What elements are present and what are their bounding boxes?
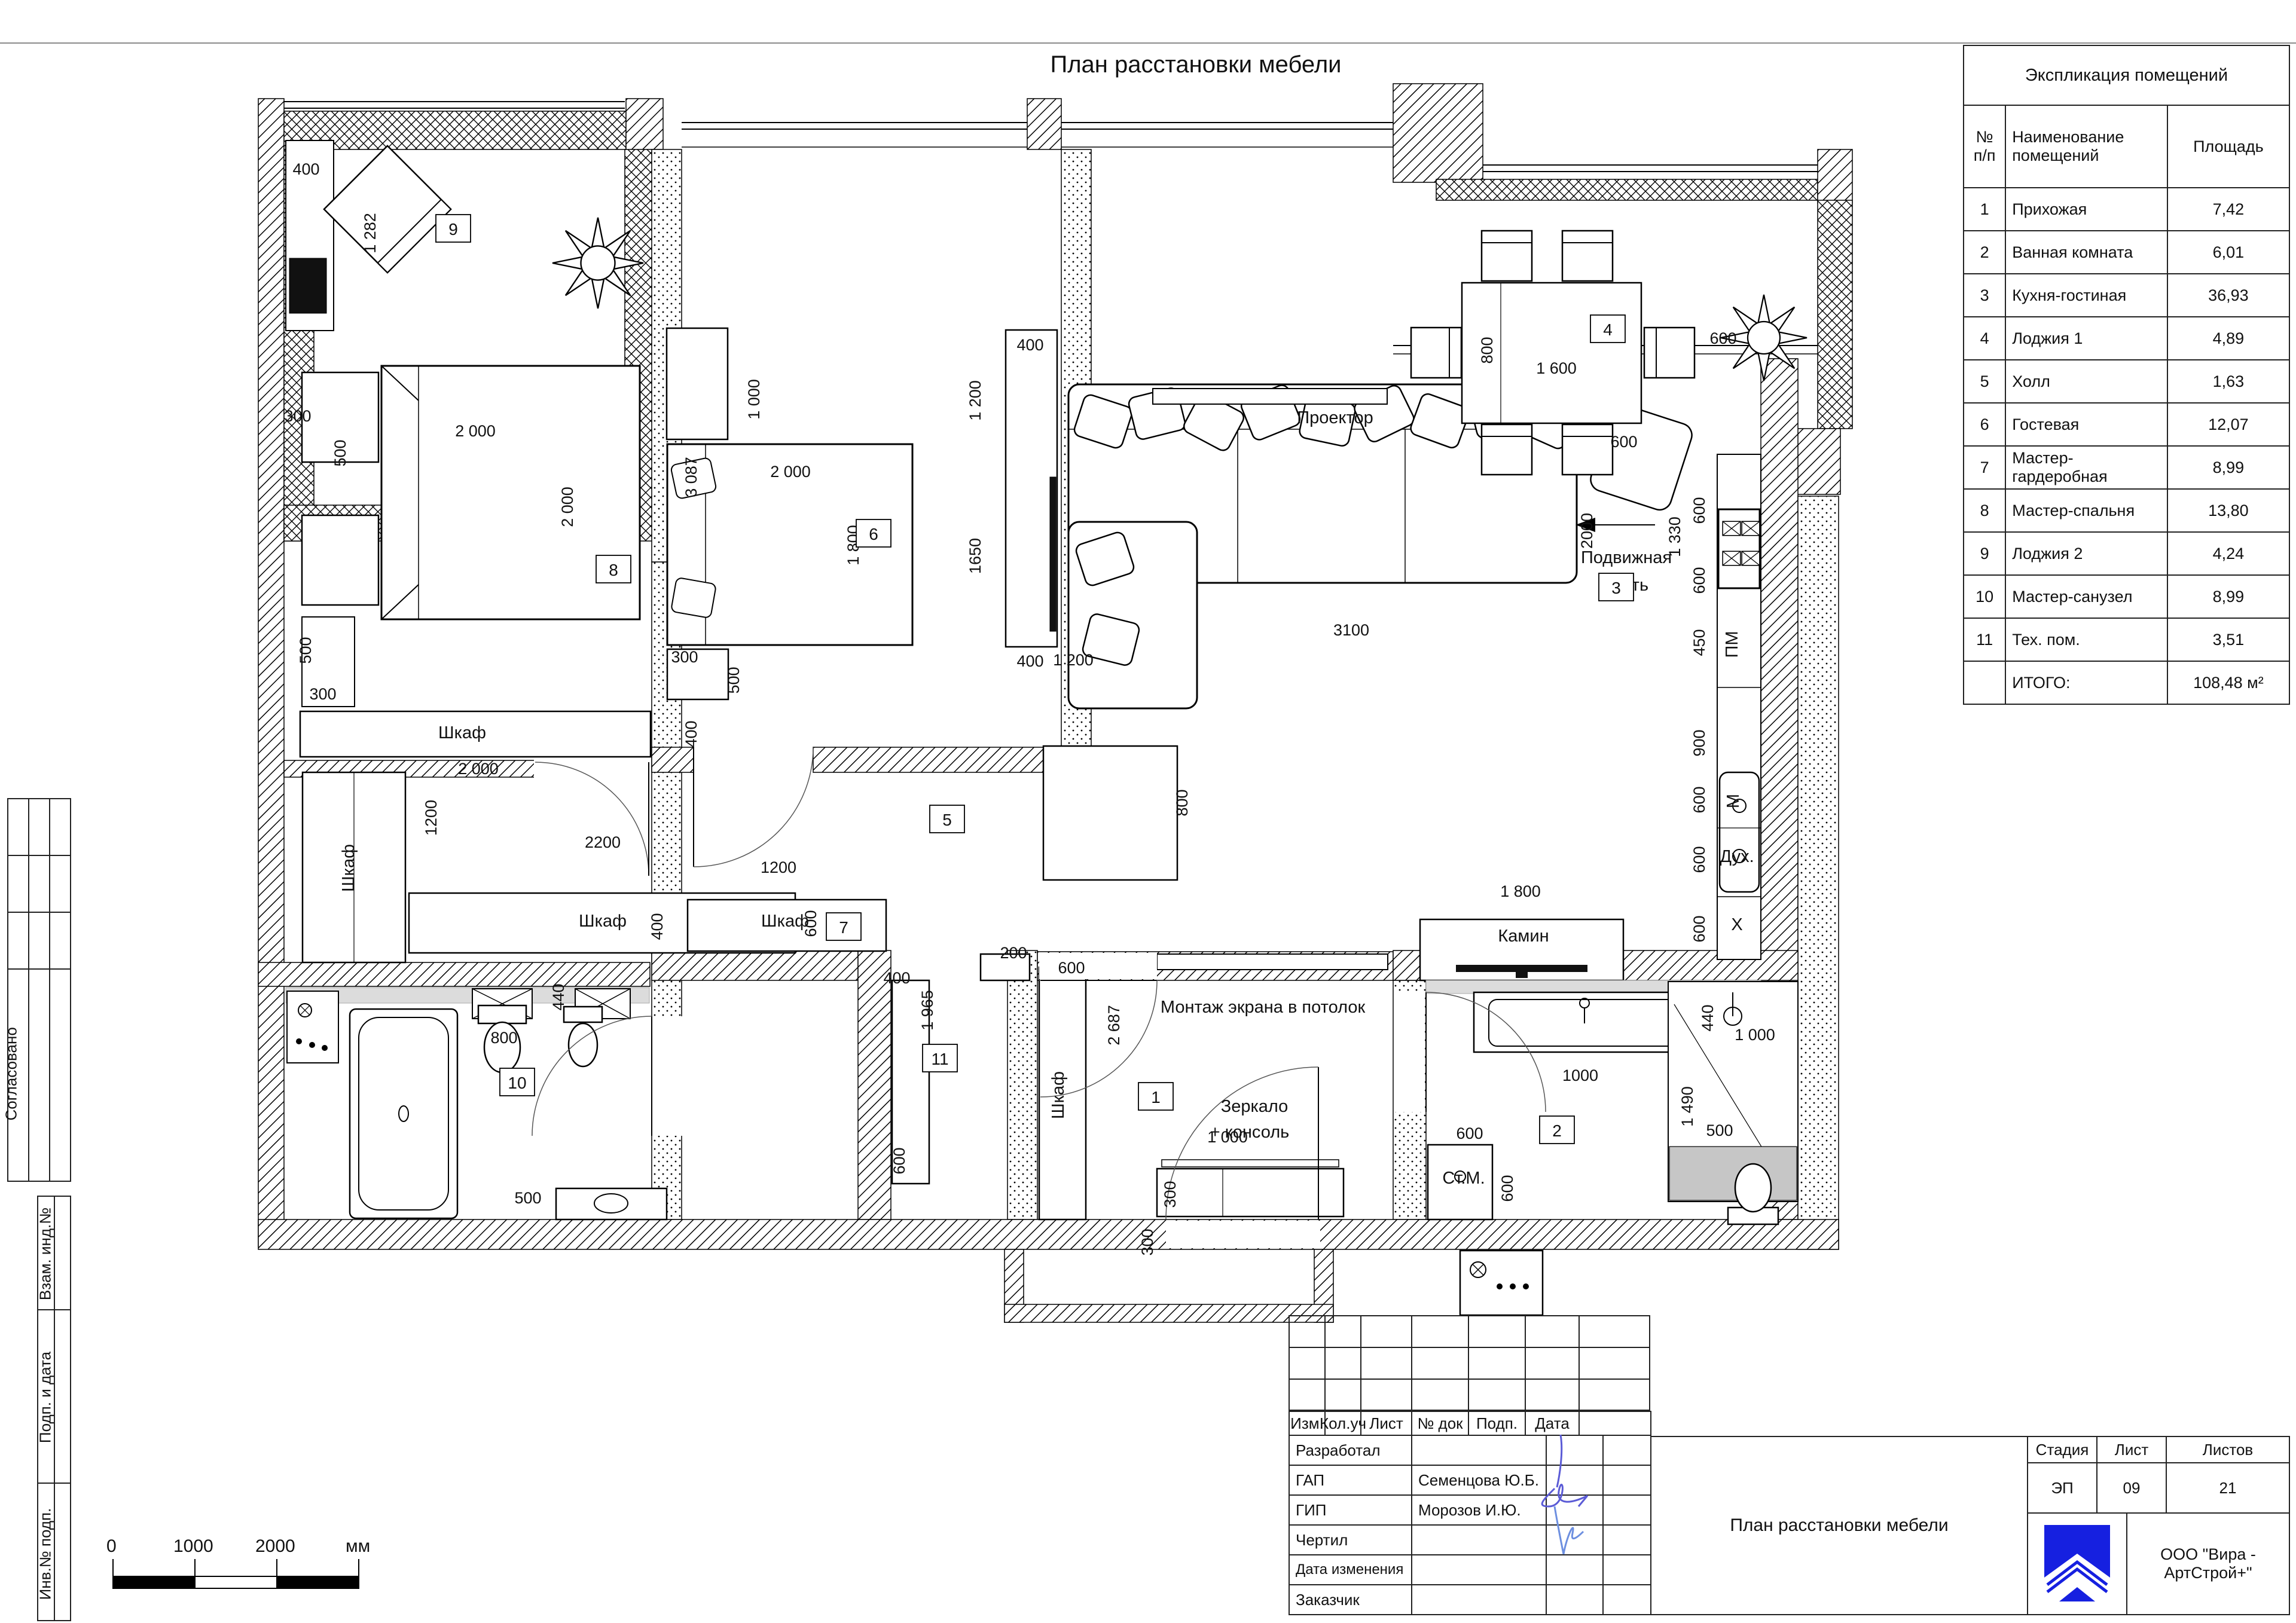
col-header-num: № п/п <box>1964 105 2005 188</box>
tb-col-koluch: Кол.уч <box>1324 1411 1361 1436</box>
room-tag: 1 <box>1138 1083 1173 1110</box>
dimension-label: 1 000 <box>1735 1026 1775 1044</box>
dimension-label: 440 <box>1699 1004 1717 1031</box>
dimension-label: 2 000 <box>558 487 576 527</box>
drawing-sheet: План расстановки мебели <box>0 0 2296 1623</box>
scale-tick-2000: 2000 <box>255 1536 295 1557</box>
svg-text:3: 3 <box>1611 579 1621 597</box>
dimension-label: 600 <box>1058 959 1085 977</box>
dimension-label: 800 <box>490 1029 517 1047</box>
svg-text:5: 5 <box>942 811 952 829</box>
frame-top-line <box>0 42 2296 44</box>
frame-label-podp: Подп. и дата <box>36 1338 55 1457</box>
dimension-label: 800 <box>1478 337 1496 363</box>
tb-col-list: Лист <box>1360 1411 1412 1436</box>
dimension-label: 300 <box>1138 1228 1156 1255</box>
dimension-label: 400 <box>292 160 319 178</box>
dimension-label: 1 490 <box>1678 1086 1696 1127</box>
tb-row-label: Заказчик <box>1289 1584 1412 1615</box>
tb-row-label: ГАП <box>1289 1465 1412 1496</box>
scale-unit: мм <box>346 1536 370 1557</box>
dimension-label: 800 <box>1173 789 1191 816</box>
room-tag: 4 <box>1590 315 1625 343</box>
dimension-label: 600 <box>1498 1175 1516 1202</box>
tb-sheet-value: 09 <box>2096 1462 2167 1514</box>
dimension-label: 300 <box>284 407 311 425</box>
furniture-label: Шкаф <box>761 912 809 931</box>
dimension-label: 500 <box>1706 1121 1733 1139</box>
dimension-label: 600 <box>1690 915 1708 942</box>
dimension-label: 900 <box>1690 729 1708 756</box>
table-row: 10Мастер-санузел8,99 <box>1964 575 2289 618</box>
dimension-label: 2 687 <box>1105 1005 1123 1046</box>
furniture-label: Проектор <box>1297 408 1373 427</box>
signatures <box>1531 1417 1638 1560</box>
dimension-label: 1200 <box>761 858 796 876</box>
dimension-label: 1 965 <box>918 990 936 1031</box>
svg-text:6: 6 <box>869 525 878 543</box>
furniture-label: Шкаф <box>339 844 358 892</box>
table-row: 9Лоджия 24,24 <box>1964 532 2289 575</box>
table-row: 5Холл1,63 <box>1964 360 2289 403</box>
table-row: 6Гостевая12,07 <box>1964 403 2289 446</box>
dimension-label: 600 <box>1709 329 1736 347</box>
tb-row-label: Дата изменения <box>1289 1554 1412 1585</box>
dimension-label: 1 200 <box>1053 651 1094 669</box>
explication-title: Экспликация помещений <box>1964 45 2289 105</box>
dimension-label: 600 <box>1690 846 1708 873</box>
dimension-label: 600 <box>1610 433 1637 451</box>
tb-stage-value: ЭП <box>2027 1462 2097 1514</box>
furniture-label: М <box>1724 794 1743 808</box>
table-row: 1Прихожая7,42 <box>1964 188 2289 231</box>
svg-text:7: 7 <box>839 918 848 937</box>
dimension-label: 200 <box>1000 944 1027 962</box>
svg-text:1: 1 <box>1151 1088 1161 1107</box>
frame-label-inv: Инв.№ подп. <box>36 1497 55 1611</box>
dimension-label: 3 087 <box>682 457 700 497</box>
dimension-label: 300 <box>1161 1181 1179 1208</box>
dimension-label: 2 000 <box>458 760 499 778</box>
table-row: 7Мастер-гардеробная8,99 <box>1964 446 2289 489</box>
dimension-label: 600 <box>1690 567 1708 594</box>
col-header-area: Площадь <box>2167 105 2289 188</box>
dimension-label: 1650 <box>966 538 984 574</box>
room-tag: 7 <box>826 913 861 940</box>
dimension-label: 1 000 <box>745 379 763 420</box>
dimension-label: 1 200 <box>966 380 984 421</box>
room-tag: 8 <box>596 555 631 583</box>
dimension-label: 300 <box>309 685 336 703</box>
tb-doc-title: План расстановки мебели <box>1650 1436 2028 1615</box>
furniture-label: + консоль <box>1210 1123 1290 1142</box>
dimension-label: 1000 <box>1562 1066 1598 1084</box>
tb-row-label: Разработал <box>1289 1435 1412 1466</box>
table-row: 3Кухня-гостиная36,93 <box>1964 274 2289 317</box>
frame-label-vzam: Взам. инд.№ <box>36 1200 55 1308</box>
scale-seg-white <box>194 1576 277 1589</box>
revision-grid <box>1289 1315 1650 1411</box>
table-row: 11Тех. пом.3,51 <box>1964 618 2289 661</box>
scale-tick-1000: 1000 <box>173 1536 213 1557</box>
dimension-label: 1 800 <box>1500 882 1541 900</box>
dimension-label: 600 <box>1690 497 1708 524</box>
dimension-label: 1 600 <box>1536 359 1577 377</box>
dimension-label: 1 282 <box>361 213 379 253</box>
furniture-label: Подвижная <box>1581 548 1672 567</box>
tb-stage-label: Стадия <box>2027 1436 2097 1463</box>
room-tag: 6 <box>856 519 891 547</box>
scale-tick-0: 0 <box>106 1536 117 1557</box>
dimension-label: 500 <box>297 637 315 664</box>
dimension-label: 2000 <box>1578 513 1596 549</box>
room-tag: 2 <box>1540 1116 1574 1144</box>
dimension-label: 400 <box>648 913 666 940</box>
furniture <box>286 140 1807 1315</box>
furniture-label: Шкаф <box>1049 1071 1068 1119</box>
dimension-label: 2 000 <box>770 463 811 481</box>
room-tag: 11 <box>923 1044 957 1072</box>
tb-row-label: ГИП <box>1289 1494 1412 1526</box>
dimension-label: 2200 <box>585 833 621 851</box>
table-row: 2Ванная комната6,01 <box>1964 231 2289 274</box>
explication-table: Экспликация помещений № п/п Наименование… <box>1963 45 2290 705</box>
tb-sheets-label: Листов <box>2166 1436 2290 1463</box>
furniture-label: ПМ <box>1723 631 1742 658</box>
furniture-label: Шкаф <box>579 912 627 931</box>
tb-col-podp: Подп. <box>1468 1411 1526 1436</box>
floor-plan: 4001 2823005002 0002 0003 0875003004002 … <box>257 60 1877 1333</box>
dimension-label: 400 <box>883 969 910 987</box>
dimension-label: 300 <box>671 648 698 666</box>
scale-seg-black2 <box>276 1576 359 1589</box>
table-row: 8Мастер-спальня13,80 <box>1964 489 2289 532</box>
table-total-row: ИТОГО:108,48 м² <box>1964 661 2289 704</box>
furniture-label: Шкаф <box>438 723 486 742</box>
furniture-label: Ст.М. <box>1442 1169 1485 1188</box>
room-tag: 3 <box>1599 573 1634 601</box>
dimension-label: 2 000 <box>455 422 496 440</box>
room-tag: 9 <box>436 215 471 242</box>
dimension-label: 400 <box>682 720 700 747</box>
col-header-name: Наименование помещений <box>2005 105 2167 188</box>
dimension-label: 3100 <box>1333 621 1369 639</box>
furniture-label: Дух. <box>1720 847 1754 866</box>
scale-seg-black1 <box>112 1576 196 1589</box>
dimension-label: 500 <box>725 667 743 693</box>
room-tag: 5 <box>930 805 964 833</box>
tb-sheets-value: 21 <box>2166 1462 2290 1514</box>
dimension-label: 600 <box>1456 1124 1483 1142</box>
company-name: ООО "Вира - АртСтрой+" <box>2126 1512 2290 1615</box>
dimension-label: 400 <box>1016 652 1043 670</box>
dimension-label: 400 <box>1016 336 1043 354</box>
room-tag: 10 <box>500 1068 535 1096</box>
dimension-label: 500 <box>514 1189 541 1207</box>
svg-text:2: 2 <box>1552 1121 1562 1140</box>
svg-text:8: 8 <box>609 561 618 579</box>
svg-text:9: 9 <box>448 220 458 239</box>
svg-text:10: 10 <box>508 1074 526 1092</box>
dimension-label: 500 <box>331 439 349 466</box>
dimension-label: 600 <box>1690 786 1708 813</box>
dimension-label: 450 <box>1690 629 1708 656</box>
table-row: 4Лоджия 14,89 <box>1964 317 2289 360</box>
dimension-label: 440 <box>549 983 567 1010</box>
company-logo-cell <box>2027 1512 2127 1615</box>
svg-text:11: 11 <box>931 1050 948 1068</box>
svg-text:4: 4 <box>1603 320 1613 339</box>
furniture-label: Монтаж экрана в потолок <box>1161 998 1366 1017</box>
furniture-label: Зеркало <box>1221 1097 1289 1116</box>
furniture-label: X <box>1731 915 1742 934</box>
approved-label: Согласовано <box>2 1031 21 1121</box>
company-logo <box>2044 1525 2110 1603</box>
dimension-label: 600 <box>890 1147 908 1174</box>
tb-col-dok: № док <box>1411 1411 1469 1436</box>
furniture-label: Камин <box>1498 927 1549 946</box>
dimension-label: 1200 <box>422 800 440 836</box>
tb-row-label: Чертил <box>1289 1524 1412 1555</box>
tb-sheet-label: Лист <box>2096 1436 2167 1463</box>
